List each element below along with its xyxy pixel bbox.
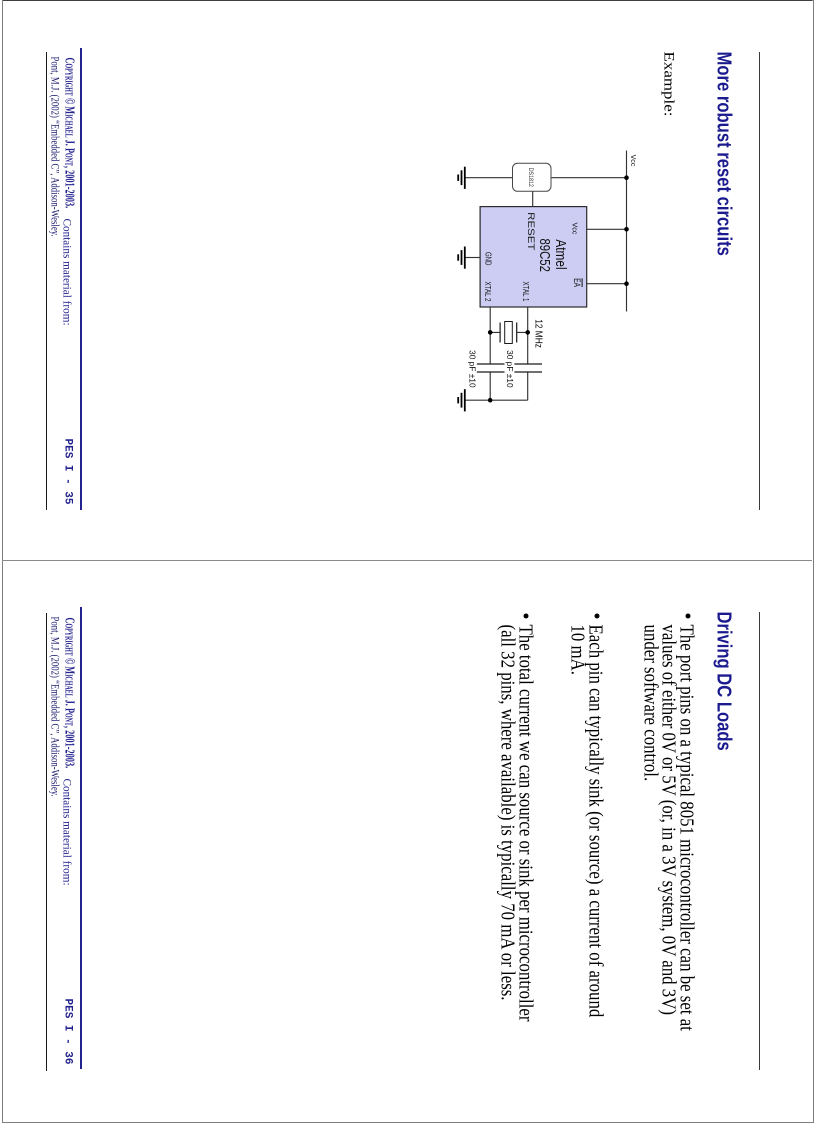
svg-text:Vcc: Vcc bbox=[570, 222, 577, 234]
svg-text:XTAL 1: XTAL 1 bbox=[521, 281, 530, 301]
svg-text:GND: GND bbox=[483, 251, 492, 265]
svg-text:30 pF ±10: 30 pF ±10 bbox=[504, 350, 513, 388]
svg-text:EA: EA bbox=[572, 278, 582, 287]
svg-text:DS1812: DS1812 bbox=[527, 167, 534, 187]
svg-text:89C52: 89C52 bbox=[536, 238, 553, 271]
svg-text:Atmel: Atmel bbox=[552, 239, 569, 269]
svg-text:12 MHz: 12 MHz bbox=[532, 319, 544, 348]
svg-text:RESET: RESET bbox=[525, 212, 535, 251]
svg-text:30 pF ±10: 30 pF ±10 bbox=[467, 350, 476, 388]
svg-text:Vcc: Vcc bbox=[629, 154, 638, 166]
svg-text:XTAL 2: XTAL 2 bbox=[482, 281, 491, 301]
